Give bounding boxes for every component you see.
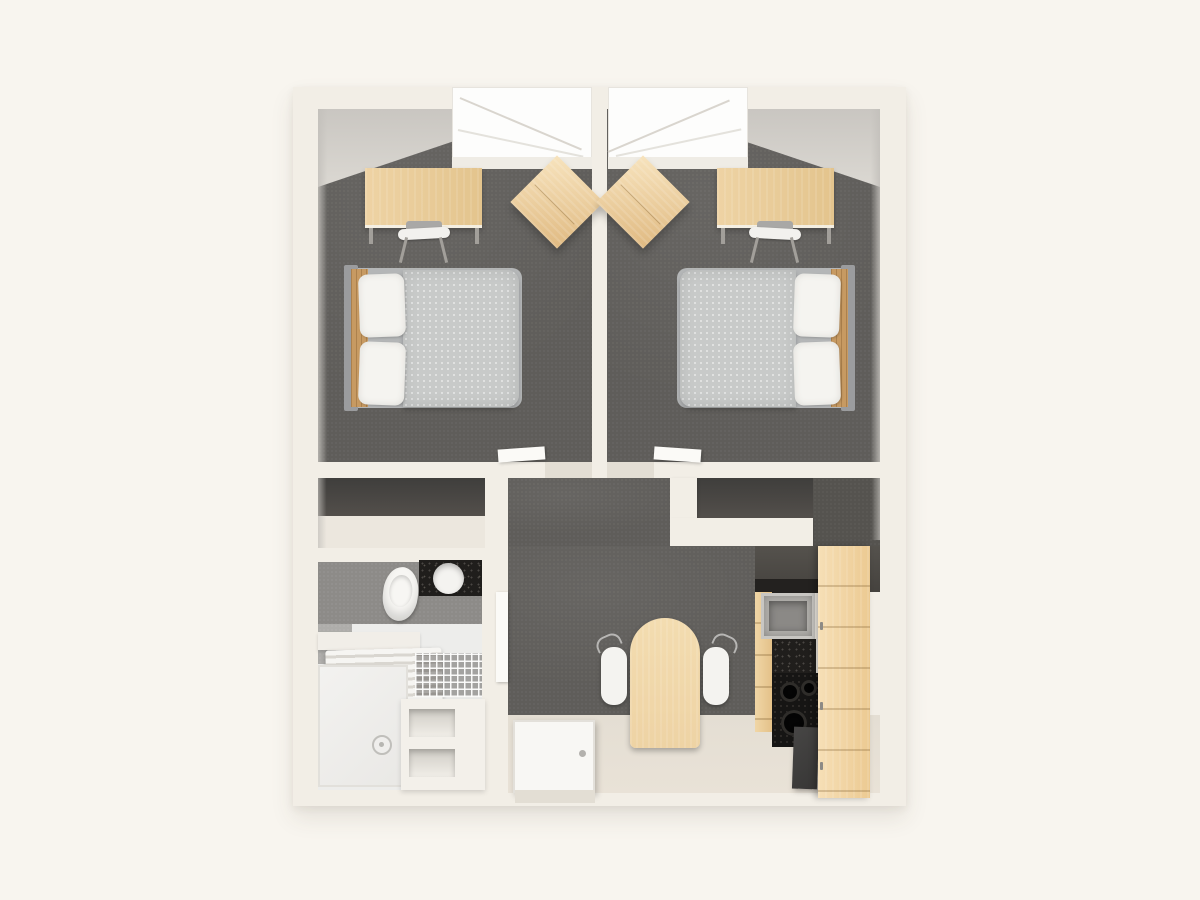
dining-table <box>630 618 700 748</box>
bed-duvet <box>403 270 519 407</box>
kitchen-sink <box>761 593 815 639</box>
chair-leg <box>790 237 799 263</box>
hob-burner <box>801 680 817 696</box>
bathroom-door-open <box>496 592 508 682</box>
bedroom-left-window <box>452 87 592 168</box>
cubby-shelf <box>409 749 455 777</box>
kitchen-dark-band <box>755 579 818 593</box>
shower-drain <box>372 735 392 755</box>
bedroom-left-desk-chair <box>396 219 454 265</box>
window-sash-line <box>616 128 742 157</box>
bedroom-right-door-threshold <box>607 462 654 478</box>
bed-pillow <box>793 273 841 338</box>
bedroom-left-door-threshold <box>545 462 592 478</box>
storage-cubby-unit <box>401 699 485 790</box>
kitchen-fridge <box>792 727 819 790</box>
bathroom-half-wall <box>318 632 420 650</box>
bed-duvet <box>680 270 796 407</box>
bed-pillow <box>358 273 406 338</box>
bedroom-right-window <box>608 87 748 168</box>
dining-chair-left <box>601 647 627 705</box>
wire-shelf <box>415 653 482 697</box>
hall-floor-upper <box>508 478 670 546</box>
bed-pillow <box>358 341 406 406</box>
desk-leg <box>369 228 373 244</box>
cabinet-handle <box>820 762 823 770</box>
chair-leg <box>399 237 408 263</box>
apartment-plan <box>293 87 906 806</box>
alcove-face <box>318 478 328 548</box>
cubby-shelf <box>409 709 455 737</box>
kitchen-tall-cabinet <box>818 546 870 798</box>
bedroom-right-desk-chair <box>745 219 803 265</box>
bedroom-left-wall-face-left <box>318 109 329 462</box>
bathroom-basin <box>433 563 464 594</box>
entry-threshold <box>515 790 595 803</box>
front-door-open-flat <box>513 720 595 793</box>
alcove-back-wall <box>318 478 485 516</box>
door-handle <box>579 750 586 757</box>
desk-leg <box>827 228 831 244</box>
cabinet-handle <box>820 622 823 630</box>
alcove-floor <box>318 516 485 548</box>
bed-pillow <box>793 341 841 406</box>
chair-leg <box>439 237 448 263</box>
chair-leg <box>750 237 759 263</box>
alcove-face <box>870 478 880 540</box>
kitchen-counter-speckled <box>772 639 816 673</box>
desk-leg <box>475 228 479 244</box>
shower-tray <box>318 665 408 787</box>
dining-chair-right <box>703 647 729 705</box>
hob-burner <box>780 682 800 702</box>
kitchen-sink-basin <box>769 601 807 631</box>
alcove-right-bottom-wall <box>670 518 813 546</box>
floor-plan-render <box>0 0 1200 900</box>
bedroom-right-wall-face-right <box>869 109 880 462</box>
desk-leg <box>721 228 725 244</box>
cabinet-handle <box>820 702 823 710</box>
